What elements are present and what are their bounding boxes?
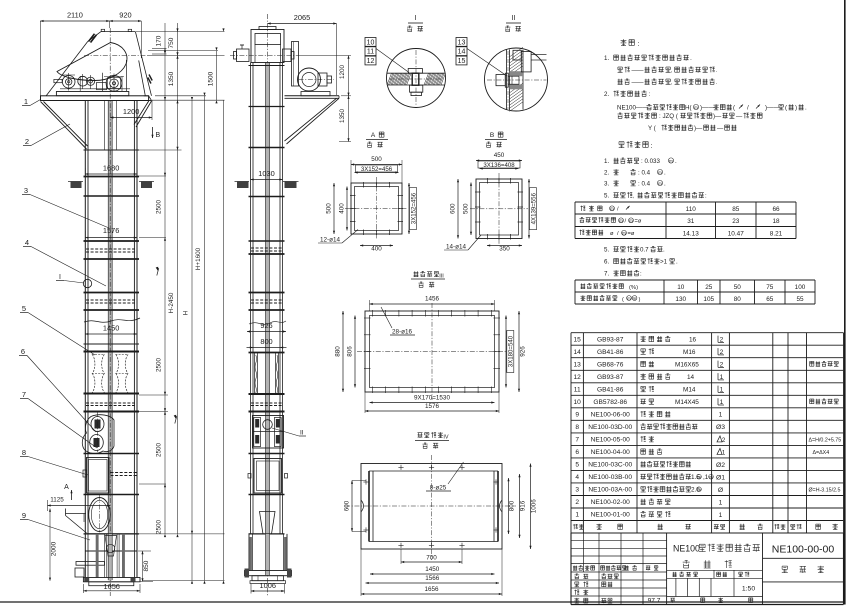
svg-text:7: 7 (22, 390, 26, 399)
svg-text:H(: H( (685, 105, 692, 112)
svg-text:,: , (633, 194, 634, 200)
svg-text:GB93-87: GB93-87 (597, 336, 624, 343)
svg-text:700: 700 (426, 555, 437, 562)
svg-text:2.: 2. (604, 170, 609, 177)
svg-text:M14X45: M14X45 (675, 399, 699, 406)
svg-text:/: / (747, 105, 749, 112)
svg-text:920: 920 (119, 11, 131, 20)
svg-text:)—: )— (713, 113, 722, 120)
svg-text:916: 916 (520, 500, 527, 511)
svg-text:14.13: 14.13 (683, 231, 699, 238)
svg-text:ø: ø (610, 231, 614, 237)
svg-text:500: 500 (463, 203, 470, 214)
svg-text:4: 4 (575, 474, 579, 481)
svg-text:31: 31 (687, 218, 695, 225)
svg-text:6: 6 (575, 449, 579, 456)
svg-text:)—: )— (694, 125, 703, 132)
svg-text:13: 13 (458, 39, 466, 46)
svg-text:1030: 1030 (258, 169, 274, 178)
svg-text:B: B (156, 132, 161, 139)
svg-text:NE100-03C-00: NE100-03C-00 (588, 462, 632, 469)
svg-text:2: 2 (575, 499, 579, 506)
svg-text:II: II (300, 430, 304, 437)
svg-text:4X139=556: 4X139=556 (530, 192, 537, 224)
svg-text:5.: 5. (604, 247, 609, 254)
svg-text:600: 600 (344, 500, 351, 511)
svg-text:2.: 2. (604, 91, 609, 98)
svg-text::: : (638, 41, 640, 48)
svg-text:23: 23 (732, 218, 740, 225)
svg-text:3X152=456: 3X152=456 (361, 166, 393, 173)
svg-text:800: 800 (260, 337, 272, 346)
svg-text:10.47: 10.47 (728, 231, 744, 238)
svg-text:H: H (183, 310, 190, 315)
svg-text:(%): (%) (629, 285, 638, 291)
svg-text:65: 65 (766, 296, 774, 303)
svg-text:8-ø25: 8-ø25 (430, 485, 447, 492)
svg-text:1: 1 (719, 512, 723, 519)
svg-text:Δ=ΔX4: Δ=ΔX4 (813, 450, 830, 456)
svg-text:9: 9 (575, 411, 579, 418)
svg-text:110: 110 (686, 206, 697, 213)
svg-text:=ø: =ø (635, 219, 642, 225)
svg-text:): ) (639, 297, 641, 303)
svg-text:1006: 1006 (531, 499, 538, 514)
svg-text:5: 5 (22, 304, 26, 313)
svg-text:3.: 3. (604, 181, 609, 188)
svg-text:1:50: 1:50 (742, 586, 755, 593)
svg-text:1: 1 (719, 412, 723, 419)
svg-text:1450: 1450 (103, 324, 119, 333)
svg-text:NE100-02-00: NE100-02-00 (591, 499, 631, 506)
svg-text:100: 100 (795, 284, 806, 291)
svg-text:80: 80 (734, 296, 742, 303)
svg-text:2: 2 (722, 437, 726, 444)
svg-text:14: 14 (687, 374, 695, 381)
svg-text:1200: 1200 (339, 65, 346, 80)
svg-text:3: 3 (24, 186, 28, 195)
svg-text:m: m (619, 218, 623, 223)
svg-text:13: 13 (574, 361, 582, 368)
svg-text:Δ=H/0.2+5.75: Δ=H/0.2+5.75 (809, 437, 842, 443)
svg-text:1: 1 (575, 512, 579, 519)
svg-text:10: 10 (677, 284, 685, 291)
svg-text:NE100-04-00: NE100-04-00 (591, 449, 631, 456)
svg-text:1: 1 (722, 449, 726, 456)
svg-text:——: —— (632, 80, 644, 86)
svg-text:1: 1 (719, 499, 723, 506)
svg-text:2110: 2110 (67, 11, 83, 20)
svg-text:II: II (512, 15, 516, 22)
svg-text:1456: 1456 (425, 296, 440, 303)
svg-text:15: 15 (574, 336, 582, 343)
svg-text:m: m (658, 170, 662, 175)
svg-text:.: . (664, 181, 666, 188)
svg-text:10: 10 (574, 399, 582, 406)
svg-text:3: 3 (575, 487, 579, 494)
svg-text:m: m (658, 181, 662, 186)
svg-text:880: 880 (335, 346, 342, 357)
svg-text:850: 850 (143, 560, 150, 571)
svg-text:14: 14 (574, 349, 582, 356)
svg-text:,: , (671, 80, 672, 86)
svg-text:750: 750 (168, 37, 175, 48)
svg-text:B: B (490, 132, 494, 139)
svg-text:6.: 6. (604, 259, 609, 266)
svg-text:8.21: 8.21 (770, 231, 783, 238)
svg-text:NE100: NE100 (673, 544, 700, 554)
svg-text:28-ø16: 28-ø16 (392, 329, 412, 336)
svg-text:H+1600: H+1600 (195, 247, 202, 270)
svg-text::: : (651, 143, 653, 150)
svg-text:: 0.4: : 0.4 (638, 170, 651, 177)
svg-text:I: I (415, 15, 417, 22)
svg-text:4: 4 (25, 238, 29, 247)
svg-text:M14: M14 (683, 386, 696, 393)
svg-text:600: 600 (450, 203, 457, 214)
svg-text:2: 2 (25, 137, 29, 146)
svg-text:Ø3: Ø3 (716, 424, 725, 431)
svg-text:,: , (671, 68, 672, 74)
svg-text:m: m (610, 206, 614, 211)
svg-text:7.: 7. (604, 271, 609, 278)
svg-text:I: I (59, 274, 61, 281)
svg-text:NE100-03B-00: NE100-03B-00 (588, 474, 632, 481)
svg-text:25: 25 (705, 284, 713, 291)
svg-text:,1: ,1 (703, 474, 709, 481)
svg-text:2000: 2000 (51, 541, 58, 556)
svg-text:1.: 1. (604, 55, 609, 62)
svg-text:55: 55 (796, 296, 804, 303)
svg-text:170: 170 (156, 35, 163, 46)
svg-text:66: 66 (772, 206, 780, 213)
svg-text:1125: 1125 (50, 497, 64, 504)
svg-text:.: . (716, 80, 717, 86)
svg-text:Y (: Y ( (648, 125, 657, 132)
svg-text:1006: 1006 (260, 581, 276, 590)
svg-text:NE100-03A-00: NE100-03A-00 (588, 487, 632, 494)
svg-text:: JZQ (: : JZQ ( (659, 113, 679, 120)
svg-text:2065: 2065 (294, 13, 310, 22)
svg-text:>1: >1 (660, 259, 668, 266)
svg-text:.: . (805, 105, 807, 112)
svg-text:=ø: =ø (628, 231, 635, 237)
svg-text:11: 11 (367, 49, 374, 56)
svg-text:m: m (669, 158, 673, 163)
svg-text:12: 12 (574, 374, 582, 381)
svg-text:m: m (697, 474, 701, 479)
svg-text:5.: 5. (604, 193, 609, 200)
svg-text:GB5782-86: GB5782-86 (593, 399, 627, 406)
svg-text:1200: 1200 (123, 107, 139, 116)
svg-text:Ø=H-3.15/2.5: Ø=H-3.15/2.5 (809, 487, 841, 493)
svg-text:)——: )—— (765, 105, 780, 112)
svg-text:A: A (64, 484, 69, 491)
svg-text:8: 8 (22, 448, 26, 457)
svg-text:—: — (736, 113, 743, 120)
svg-text:NE100-00-00: NE100-00-00 (772, 544, 835, 556)
svg-text:NE100-05-00: NE100-05-00 (591, 437, 631, 444)
svg-text:1566: 1566 (425, 575, 440, 582)
svg-text:Ø: Ø (718, 487, 724, 494)
svg-text:97.7: 97.7 (648, 598, 661, 605)
svg-text:m: m (697, 487, 701, 492)
svg-text:m: m (694, 105, 698, 110)
svg-text:Ø1: Ø1 (716, 474, 725, 481)
svg-text:3X136=408: 3X136=408 (483, 162, 515, 169)
svg-text:——: —— (632, 68, 644, 74)
svg-text:500: 500 (371, 156, 382, 163)
svg-text:GB41-86: GB41-86 (597, 349, 624, 356)
svg-text:2500: 2500 (156, 358, 163, 373)
svg-text:.: . (716, 68, 717, 74)
svg-text:14: 14 (458, 49, 466, 56)
svg-text:2500: 2500 (156, 200, 163, 215)
svg-text:: 0.4: : 0.4 (638, 181, 651, 188)
svg-text:16: 16 (689, 336, 697, 343)
svg-text:(: ( (622, 297, 624, 303)
svg-text:806: 806 (347, 346, 354, 357)
svg-text:9X170=1530: 9X170=1530 (414, 395, 450, 402)
svg-text:): ) (795, 105, 797, 112)
svg-text:85: 85 (732, 206, 740, 213)
svg-text:: 0.033: : 0.033 (641, 158, 660, 165)
svg-text:18: 18 (772, 218, 780, 225)
svg-text:1656: 1656 (424, 586, 439, 593)
svg-text:A: A (371, 132, 376, 139)
svg-text:M16: M16 (683, 349, 696, 356)
svg-text:1680: 1680 (103, 164, 119, 173)
svg-text:GB93-87: GB93-87 (597, 374, 624, 381)
svg-text:9: 9 (22, 511, 26, 520)
svg-text:450: 450 (494, 152, 505, 159)
svg-text:m: m (709, 474, 713, 479)
svg-text:1576: 1576 (425, 403, 440, 410)
svg-text:6: 6 (21, 347, 25, 356)
svg-text:3X152=456: 3X152=456 (410, 192, 417, 224)
svg-text:105: 105 (703, 296, 714, 303)
svg-text:.: . (676, 259, 678, 266)
svg-text:130: 130 (675, 296, 686, 303)
svg-text:500: 500 (326, 203, 333, 214)
svg-text:GB41-86: GB41-86 (597, 386, 624, 393)
svg-text:NE100——: NE100—— (617, 105, 649, 112)
svg-text:M16X65: M16X65 (675, 361, 699, 368)
svg-text:—: — (717, 125, 724, 132)
svg-text:926: 926 (520, 346, 527, 357)
svg-text:12-ø14: 12-ø14 (320, 237, 340, 244)
svg-text:IV: IV (443, 435, 449, 441)
svg-text:2500: 2500 (156, 520, 163, 535)
svg-text:.: . (664, 170, 666, 177)
svg-text:1: 1 (24, 97, 28, 106)
svg-text:H-2450: H-2450 (168, 292, 175, 313)
svg-text:7: 7 (575, 437, 579, 444)
svg-text:350: 350 (499, 246, 510, 253)
svg-text:12: 12 (367, 58, 375, 65)
svg-text:2500: 2500 (156, 443, 163, 458)
svg-text:1576: 1576 (103, 226, 119, 235)
svg-text:)——: )—— (700, 105, 715, 112)
svg-text:75: 75 (766, 284, 774, 291)
svg-text:m: m (629, 218, 633, 223)
svg-text:400: 400 (371, 246, 382, 253)
svg-text:NE100-01-00: NE100-01-00 (591, 512, 631, 519)
svg-text:14-ø14: 14-ø14 (446, 244, 466, 251)
svg-text:1350: 1350 (339, 109, 346, 124)
svg-text:1.: 1. (604, 158, 609, 165)
svg-text:Ø2: Ø2 (716, 462, 725, 469)
svg-text:8: 8 (575, 424, 579, 431)
svg-text:5: 5 (575, 462, 579, 469)
svg-text:.: . (675, 158, 677, 165)
svg-text:926: 926 (260, 321, 272, 330)
svg-text:800: 800 (509, 500, 516, 511)
svg-text:0.7: 0.7 (640, 247, 649, 254)
svg-text:m: m (627, 296, 631, 301)
svg-text:15: 15 (458, 58, 466, 65)
svg-text:.: . (663, 247, 665, 254)
svg-text:NE100-03D-00: NE100-03D-00 (588, 424, 632, 431)
svg-text:1656: 1656 (103, 582, 119, 591)
svg-text:400: 400 (339, 203, 346, 214)
svg-text:GB68-76: GB68-76 (597, 361, 624, 368)
svg-text:1500: 1500 (208, 71, 215, 86)
svg-text:NE100-06-00: NE100-06-00 (591, 411, 631, 418)
svg-text:1350: 1350 (168, 71, 175, 86)
svg-text:m: m (633, 296, 637, 301)
svg-text:m: m (622, 231, 626, 236)
svg-text:3X180=540: 3X180=540 (508, 335, 515, 367)
svg-text:10: 10 (367, 39, 375, 46)
svg-text:11: 11 (574, 386, 581, 393)
svg-text:1450: 1450 (425, 566, 440, 573)
svg-text:50: 50 (734, 284, 742, 291)
